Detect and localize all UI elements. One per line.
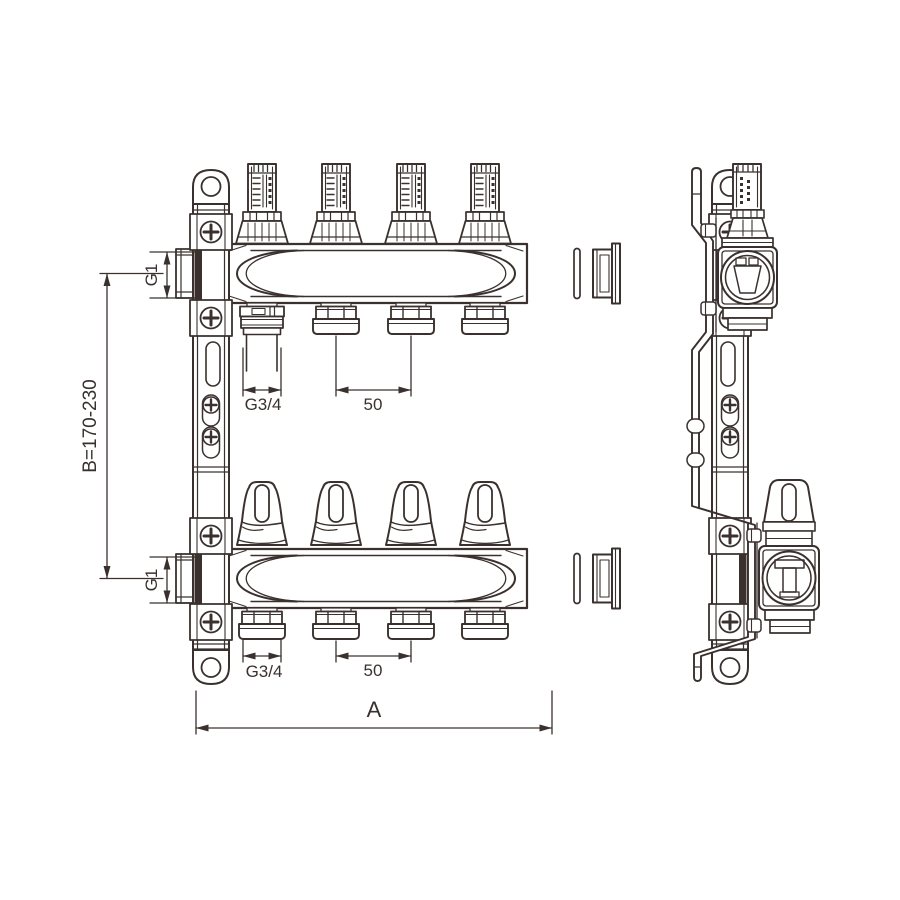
supply-outlet-port-2 [313, 303, 359, 334]
bracket-boss-lower [687, 453, 704, 467]
dim-label-g34-top: G3/4 [245, 395, 282, 414]
dim-label-b: B=170-230 [80, 379, 101, 473]
supply-manifold-barrel [225, 244, 527, 303]
valve-cap-1 [237, 482, 287, 545]
valve-cap-4 [460, 482, 510, 545]
dimension-b: B=170-230 [80, 274, 163, 579]
supply-outlet-port-3 [388, 303, 434, 334]
manifold-technical-drawing: G1 G1 B=170-230 [0, 0, 900, 900]
dimension-50-top: 50 [336, 336, 411, 414]
dim-label-g34-bottom: G3/4 [246, 662, 283, 681]
technical-drawing-page: G1 G1 B=170-230 [0, 0, 900, 900]
return-outlet-port-2 [313, 608, 359, 639]
dimension-g34-bottom: G3/4 [243, 640, 282, 681]
end-cap-bottom [574, 549, 620, 609]
dim-label-50-top: 50 [364, 395, 383, 414]
flow-meter-4 [459, 164, 511, 244]
return-outlet-port-3 [388, 608, 434, 639]
dimension-g34-top: G3/4 [243, 348, 281, 414]
union-fitting-g34 [240, 303, 284, 371]
valve-cap-3 [386, 482, 436, 545]
dimension-50-bottom: 50 [336, 641, 411, 680]
front-view: G1 G1 B=170-230 [80, 164, 751, 734]
return-outlet-port-1 [239, 608, 285, 639]
flow-meter-2 [310, 164, 362, 244]
side-view [687, 164, 819, 681]
dimension-a: A [196, 691, 552, 734]
left-bracket-rail [190, 170, 232, 684]
end-cap-top [574, 244, 620, 304]
dim-label-a: A [367, 697, 382, 722]
dim-label-g1-top: G1 [142, 264, 161, 287]
return-manifold-barrel [225, 549, 527, 608]
dim-label-50-bottom: 50 [364, 661, 383, 680]
flow-meter-3 [385, 164, 437, 244]
dim-label-g1-bottom: G1 [142, 569, 161, 592]
supply-outlet-port-4 [462, 303, 508, 334]
valve-cap-2 [311, 482, 361, 545]
flow-meter-1 [236, 164, 288, 244]
side-return-valve [747, 480, 819, 638]
bracket-boss-upper [687, 419, 704, 433]
return-outlet-port-4 [462, 608, 508, 639]
